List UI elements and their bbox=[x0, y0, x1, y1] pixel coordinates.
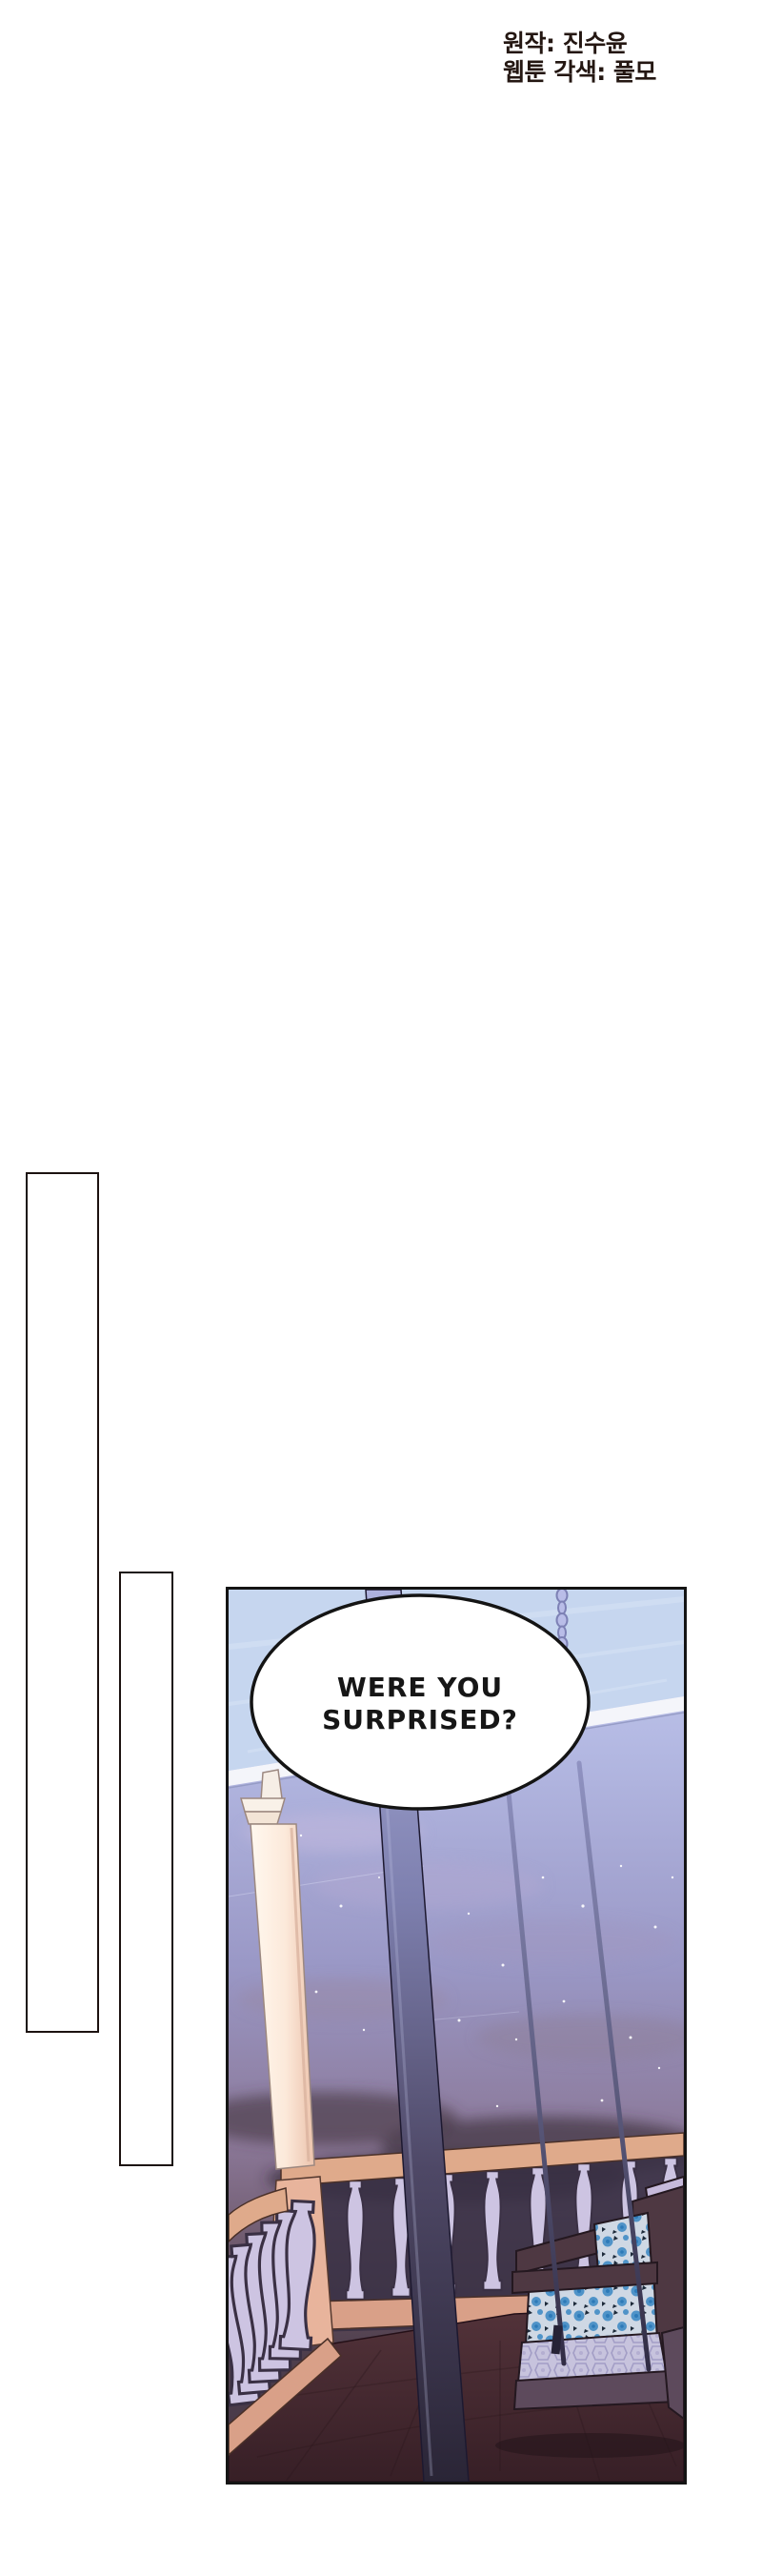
column-abacus bbox=[241, 1798, 285, 1812]
speech-bubble: WERE YOU SURPRISED? bbox=[251, 1595, 589, 1809]
credits-original-author: 원작: 진수윤 bbox=[503, 30, 656, 58]
swing-floor-shadow bbox=[495, 2433, 684, 2458]
column-bracket bbox=[261, 1770, 282, 1800]
column-echinus bbox=[245, 1812, 281, 1824]
comic-panel-balcony-scene: WERE YOU SURPRISED? bbox=[226, 1587, 687, 2485]
webtoon-page: { "page": { "width": 800, "height": 2703… bbox=[0, 0, 762, 2576]
speech-bubble-text-line1: WERE YOU bbox=[337, 1672, 503, 1703]
empty-comic-panel-2 bbox=[119, 1572, 173, 2166]
balcony-scene-illustration: WERE YOU SURPRISED? bbox=[229, 1590, 684, 2482]
speech-bubble-text-line2: SURPRISED? bbox=[322, 1704, 518, 1735]
empty-comic-panel-1 bbox=[26, 1172, 99, 2033]
credits-block: 원작: 진수윤 웹툰 각색: 풀모 bbox=[503, 30, 656, 87]
credits-webtoon-adaptation: 웹툰 각색: 풀모 bbox=[503, 58, 656, 87]
